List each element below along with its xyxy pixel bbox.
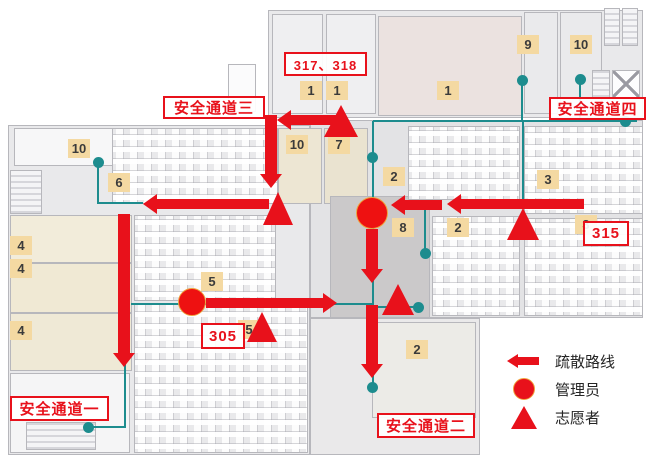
legend-icon-box	[506, 351, 542, 371]
evacuation-arrow-bar	[118, 214, 130, 354]
label-room-317-318: 317、318	[284, 52, 367, 76]
assembly-point-dot	[367, 152, 378, 163]
room-number-badge: 10	[286, 135, 308, 154]
assembly-point-dot	[83, 422, 94, 433]
room-number-badge: 8	[392, 218, 414, 237]
evacuation-arrowhead	[260, 174, 282, 188]
label-passage-1: 安全通道一	[10, 396, 109, 421]
manager-circle-icon	[513, 378, 535, 400]
evacuation-arrowhead	[277, 110, 291, 130]
label-passage-2: 安全通道二	[377, 413, 475, 438]
legend-icon-box	[506, 378, 542, 400]
volunteer-marker	[382, 284, 414, 315]
room-number-badge: 9	[517, 35, 539, 54]
room-number-badge: 1	[300, 81, 322, 100]
legend-icon-box	[506, 406, 542, 429]
room-number-badge: 3	[537, 170, 559, 189]
evacuation-arrowhead	[447, 194, 461, 214]
manager-marker	[356, 197, 388, 229]
label-room-305: 305	[201, 323, 245, 349]
evacuation-floor-plan: 10644455107111910282332安全通道三安全通道四安全通道一安全…	[0, 0, 650, 462]
route-network-line	[522, 121, 524, 208]
volunteer-marker	[247, 312, 277, 342]
room-number-badge: 1	[437, 81, 459, 100]
room-number-badge: 7	[328, 135, 350, 154]
route-network-line	[521, 80, 523, 121]
evacuation-arrowhead	[323, 293, 337, 313]
evacuation-legend: 疏散路线 管理员 志愿者	[506, 347, 650, 431]
route-network-line	[98, 202, 143, 204]
assembly-point-dot	[517, 75, 528, 86]
legend-row-route: 疏散路线	[506, 347, 650, 375]
room-number-badge: 2	[406, 340, 428, 359]
route-network-line	[97, 162, 99, 204]
room-number-badge: 6	[108, 173, 130, 192]
volunteer-triangle-icon	[511, 406, 537, 429]
legend-row-manager: 管理员	[506, 375, 650, 403]
room-number-badge: 10	[570, 35, 592, 54]
legend-row-volunteer: 志愿者	[506, 403, 650, 431]
room-number-badge: 2	[447, 218, 469, 237]
volunteer-marker	[324, 105, 358, 137]
room-number-badge: 4	[10, 321, 32, 340]
assembly-point-dot	[93, 157, 104, 168]
route-network-line	[373, 120, 637, 122]
room-number-badge: 5	[201, 272, 223, 291]
legend-label: 管理员	[555, 379, 600, 400]
room-number-badge: 4	[10, 236, 32, 255]
assembly-point-dot	[420, 248, 431, 259]
room-number-badge: 10	[68, 139, 90, 158]
label-passage-3: 安全通道三	[163, 96, 265, 119]
evacuation-arrowhead	[143, 194, 157, 214]
evacuation-arrowhead	[361, 269, 383, 283]
label-room-315: 315	[583, 221, 629, 246]
room-number-badge: 2	[383, 167, 405, 186]
evacuation-arrow-bar	[366, 305, 378, 365]
room-number-badge: 1	[326, 81, 348, 100]
evacuation-arrow-bar	[404, 200, 442, 210]
legend-label: 疏散路线	[555, 351, 615, 372]
evacuation-arrowhead	[361, 364, 383, 378]
evacuation-arrow-bar	[265, 115, 277, 175]
route-network-line	[424, 204, 426, 253]
evacuation-arrow-bar	[206, 298, 324, 308]
volunteer-marker	[507, 208, 539, 240]
label-passage-4: 安全通道四	[549, 97, 646, 120]
evacuation-arrowhead	[391, 195, 405, 215]
assembly-point-dot	[413, 302, 424, 313]
assembly-point-dot	[367, 382, 378, 393]
manager-marker	[178, 288, 206, 316]
route-arrow-icon	[507, 351, 541, 371]
assembly-point-dot	[575, 74, 586, 85]
evacuation-arrow-bar	[156, 199, 269, 209]
evacuation-arrow-bar	[366, 229, 378, 270]
legend-label: 志愿者	[555, 407, 600, 428]
volunteer-marker	[263, 192, 293, 225]
room-number-badge: 4	[10, 259, 32, 278]
evacuation-arrowhead	[113, 353, 135, 367]
